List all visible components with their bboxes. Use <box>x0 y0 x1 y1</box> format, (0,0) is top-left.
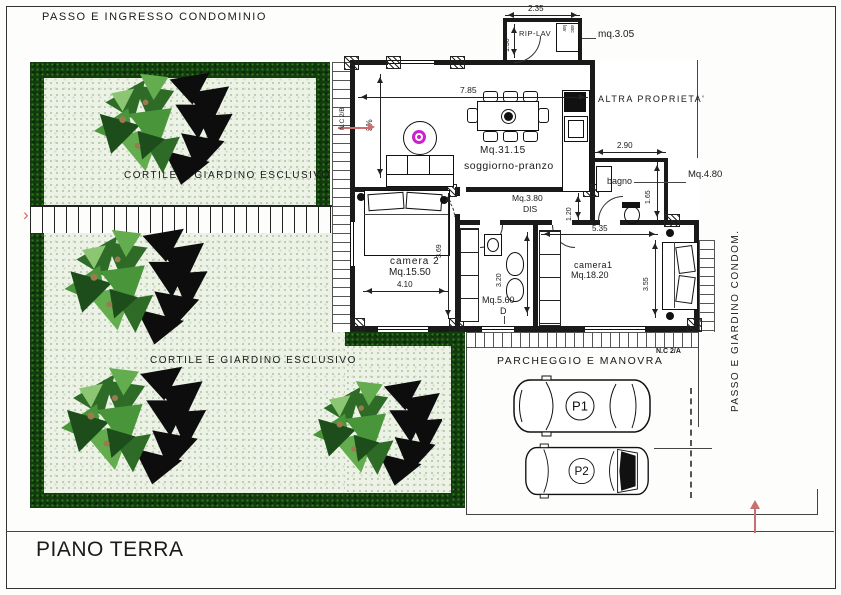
bagno2-area-label: Mq.5.60 <box>482 296 515 305</box>
blanket-line <box>674 242 675 308</box>
dis-name-label: DIS <box>523 205 537 214</box>
chair <box>523 131 538 142</box>
boundary-tick <box>654 448 712 449</box>
tree-icon <box>52 224 207 354</box>
hatch-pier <box>344 56 359 70</box>
tree-icon <box>302 372 442 498</box>
spot2-label: P2 <box>574 465 588 478</box>
sofa-cushion-line <box>407 156 408 174</box>
dimension-line <box>578 193 579 221</box>
dimension-line <box>655 240 656 318</box>
parking-boundary-right <box>817 489 818 515</box>
dim-label: 2.90 <box>617 142 633 150</box>
riplav-area-label: mq.3.05 <box>598 30 634 40</box>
site-label-right: PASSO E GIARDINO CONDOM. <box>731 230 741 413</box>
dis-area-label: Mq.3.80 <box>512 194 543 203</box>
leader-line <box>582 38 596 39</box>
blanket-line <box>364 214 448 215</box>
soggiorno-name-label: soggiorno-pranzo <box>464 161 554 172</box>
dimension-line <box>363 291 448 292</box>
pillow <box>675 245 696 274</box>
dimension-line <box>541 234 658 235</box>
nightstand-lamp-icon <box>357 193 365 201</box>
hatch-pier <box>450 56 465 69</box>
site-label-top: PASSO E INGRESSO CONDOMINIO <box>42 12 267 23</box>
dim-label: 1.65 <box>645 190 652 204</box>
camera2-area-label: Mq.15.50 <box>389 268 431 278</box>
hedge-lower-left <box>30 233 44 508</box>
wall-segment <box>503 18 582 22</box>
camera1-area-label: Mq.18.20 <box>571 271 609 280</box>
chair <box>503 131 518 142</box>
wardrobe <box>539 230 561 326</box>
dimension-line <box>527 232 528 316</box>
hatch-pier <box>386 56 401 69</box>
wall-segment <box>533 225 538 332</box>
chair <box>538 108 549 123</box>
wall-segment <box>590 60 595 222</box>
sofa <box>386 155 454 187</box>
dim-label: 7.85 <box>460 86 477 95</box>
bagno-area-label: Mq.4.80 <box>688 170 722 180</box>
tree-icon <box>78 68 236 194</box>
spot1-label: P1 <box>572 399 588 414</box>
closet-strip <box>460 228 479 322</box>
entrance-arrow-head-icon <box>750 495 760 509</box>
toilet-icon <box>624 206 640 224</box>
dim-label: 3.69 <box>436 244 443 258</box>
hedge-upper-left <box>30 62 44 205</box>
parking-boundary-left <box>466 346 467 515</box>
dim-label: 1.30 <box>504 38 511 52</box>
dimension-line <box>380 74 381 178</box>
soggiorno-area-label: Mq.31.15 <box>480 146 526 156</box>
nightstand-lamp-icon <box>666 312 674 320</box>
bagno2-tag-label: D <box>500 307 507 316</box>
pillow <box>405 192 442 211</box>
bagno-name-label: bagno <box>607 177 632 186</box>
room-riplav-label: RIP-LAV <box>519 30 551 38</box>
hatch-pier <box>687 318 702 332</box>
tile-path-left <box>332 62 352 332</box>
tag-pointer-line <box>504 316 505 324</box>
dim-label: 5.35 <box>592 225 608 233</box>
nightstand-lamp-icon <box>666 229 674 237</box>
other-property-label: ALTRA PROPRIETA' <box>598 95 705 104</box>
fixture-label: lav <box>561 25 566 31</box>
chair <box>483 131 498 142</box>
walkway-entry-chevron-icon: › <box>23 206 29 223</box>
dimension-line <box>594 152 666 153</box>
floor-title: PIANO TERRA <box>36 539 183 560</box>
sink-basin <box>568 120 584 138</box>
dimension-line <box>505 15 580 16</box>
hedge-lower-arm-right <box>451 332 465 508</box>
parcel-a-label: N.C 2/A <box>656 348 681 355</box>
leader-line <box>634 182 686 183</box>
hatch-pier <box>664 214 680 227</box>
pillow <box>367 192 404 211</box>
window <box>350 222 355 266</box>
chair <box>467 108 478 123</box>
dim-label: 2.35 <box>528 5 544 13</box>
fixture-label: asc <box>569 25 574 33</box>
tree-icon <box>48 362 206 494</box>
dim-label: 1.20 <box>566 207 573 221</box>
window <box>585 326 645 332</box>
floor-plan-sheet: PIANO TERRA PASSO E INGRESSO CONDOMINIO … <box>0 0 841 595</box>
window <box>482 326 514 332</box>
car-p1: P1 <box>512 375 652 437</box>
laundry-closet <box>556 23 579 52</box>
dim-label: 3.55 <box>643 277 650 291</box>
camera2-name-label: camera 2 <box>390 257 440 267</box>
camera1-name-label: camera1 <box>574 261 613 270</box>
tile-path-bottom <box>466 332 699 348</box>
bidet-icon <box>506 252 524 276</box>
dimension-line <box>358 97 588 98</box>
sofa-cushion-line <box>429 156 430 174</box>
dim-label: 4.10 <box>397 281 413 289</box>
sink-basin <box>487 238 499 252</box>
property-boundary-line <box>697 60 698 158</box>
door-opening <box>455 196 460 214</box>
entry-arrow-head-icon <box>368 123 379 131</box>
sofa-back-line <box>387 174 453 175</box>
parking-label: PARCHEGGIO E MANOVRA <box>497 356 663 367</box>
car-p2: P2 <box>524 440 650 502</box>
boundary-line <box>698 332 699 427</box>
wall-segment <box>350 60 355 332</box>
dimension-line <box>514 24 515 58</box>
hatch-pier <box>350 318 365 332</box>
parcel-b-label: N.C 2/B <box>340 107 347 130</box>
dashed-boundary-line <box>690 388 692 498</box>
dim-label: 3.20 <box>496 273 503 287</box>
parking-boundary-bottom <box>466 514 818 515</box>
hedge-upper-right <box>316 62 330 205</box>
dimension-line <box>657 162 658 220</box>
wall-segment <box>664 158 668 222</box>
window <box>378 326 428 332</box>
rug-magenta-dot <box>417 135 421 139</box>
title-block-divider <box>6 531 834 532</box>
dimension-line <box>448 193 449 319</box>
hedge-lower-arm-top <box>345 332 465 346</box>
table-centerpiece <box>502 110 515 123</box>
